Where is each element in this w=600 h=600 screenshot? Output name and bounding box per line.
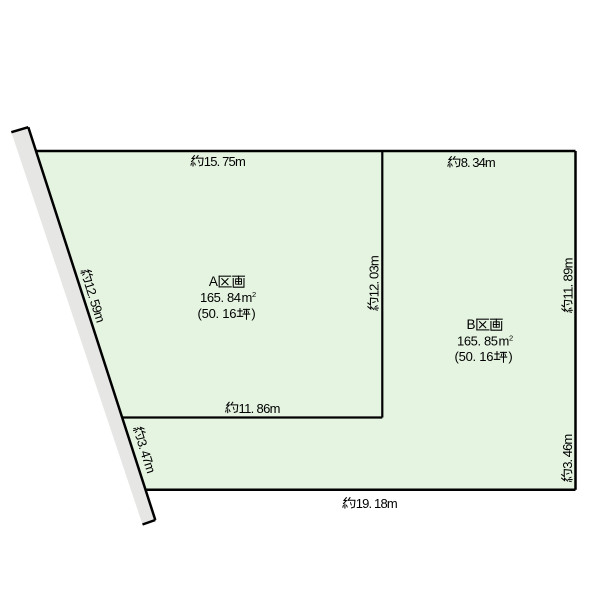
svg-text:(50. 16: (50. 16	[455, 349, 494, 364]
svg-text:12. 03m: 12. 03m	[366, 255, 381, 297]
svg-text:165. 84: 165. 84	[200, 290, 241, 305]
svg-text:11. 89m: 11. 89m	[560, 258, 575, 300]
svg-text:): )	[251, 306, 255, 321]
svg-text:19. 18m: 19. 18m	[356, 496, 398, 511]
svg-text:165. 85: 165. 85	[457, 333, 498, 348]
svg-text:2: 2	[509, 333, 513, 342]
svg-text:m: m	[499, 333, 510, 348]
svg-text:2: 2	[252, 290, 256, 299]
svg-text:): )	[508, 349, 512, 364]
svg-text:B: B	[467, 317, 476, 332]
svg-text:8. 34m: 8. 34m	[461, 155, 496, 170]
svg-text:11. 86m: 11. 86m	[239, 401, 281, 416]
svg-text:(50. 16: (50. 16	[198, 306, 237, 321]
svg-text:15. 75m: 15. 75m	[204, 154, 246, 169]
svg-text:A: A	[209, 274, 218, 289]
svg-text:3. 46m: 3. 46m	[560, 434, 575, 469]
svg-text:m: m	[242, 290, 253, 305]
